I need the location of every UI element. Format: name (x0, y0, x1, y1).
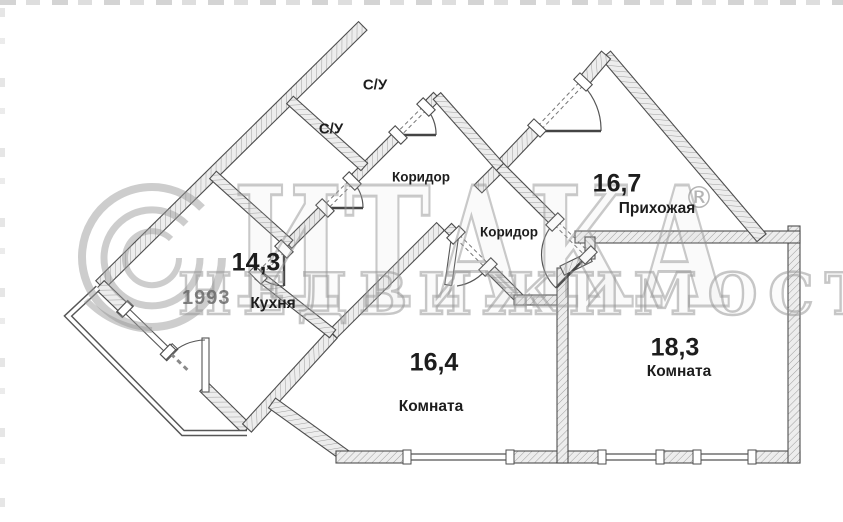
label-room-right: Комната (647, 363, 711, 381)
floor-plan-drawing (0, 0, 843, 522)
label-room-center: Комната (399, 398, 463, 416)
label-hallway: Прихожая (619, 200, 695, 218)
label-corridor-top: Коридор (392, 170, 450, 185)
label-kitchen: Кухня (250, 295, 295, 313)
label-corridor-bottom: Коридор (480, 225, 538, 240)
watermark-emblem (82, 187, 222, 330)
walls (96, 22, 800, 463)
windows (117, 300, 756, 464)
label-wc-bottom: С/У (319, 121, 343, 138)
area-kitchen: 14,3 (232, 249, 281, 278)
area-room-center: 16,4 (410, 349, 459, 378)
area-room-right: 18,3 (651, 334, 700, 363)
label-wc-top: С/У (363, 77, 387, 94)
area-hallway: 16,7 (593, 170, 642, 199)
floor-plan-page: ИТАКА ® НЕДВИЖИМОСТЬ 1993 С/У С/У Коридо… (0, 0, 843, 522)
